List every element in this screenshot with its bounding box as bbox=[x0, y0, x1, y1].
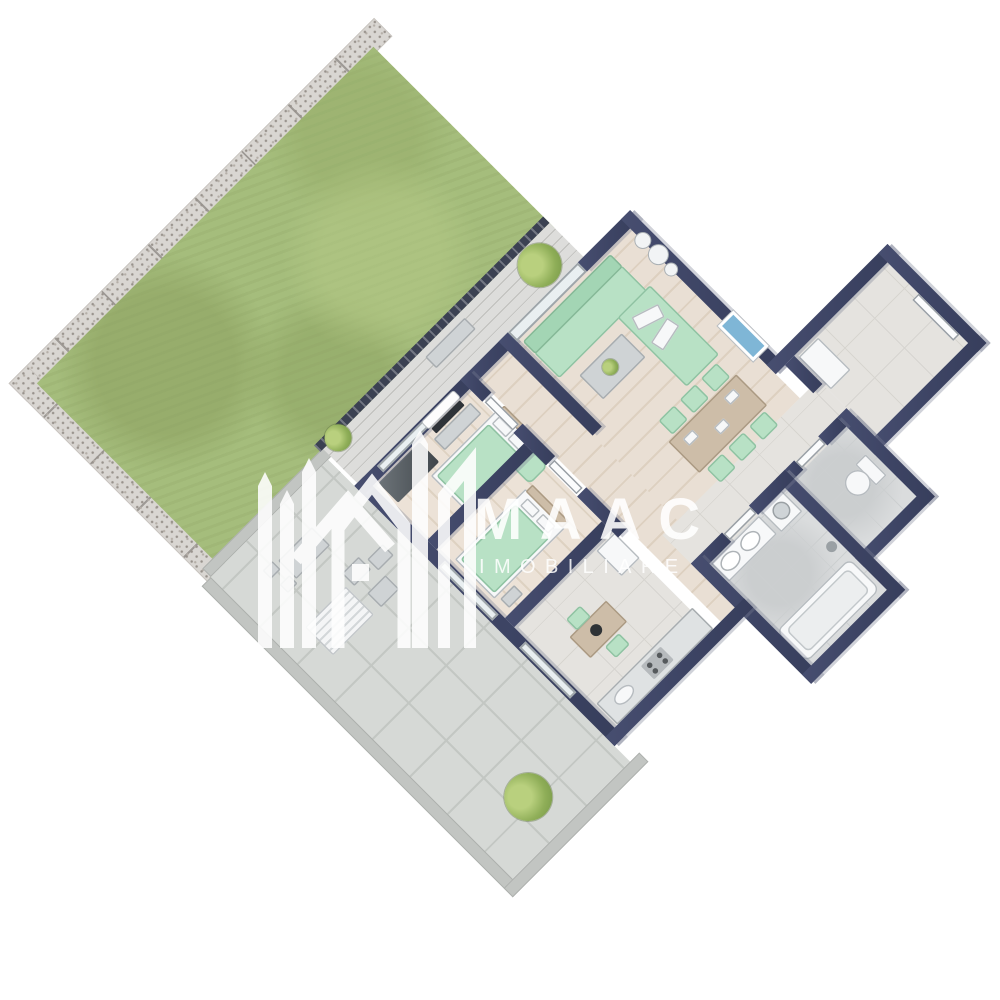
rotated-plan-scene bbox=[0, 0, 1000, 1000]
floorplan-render: MAAC IMOBILIARE bbox=[0, 0, 1000, 1000]
